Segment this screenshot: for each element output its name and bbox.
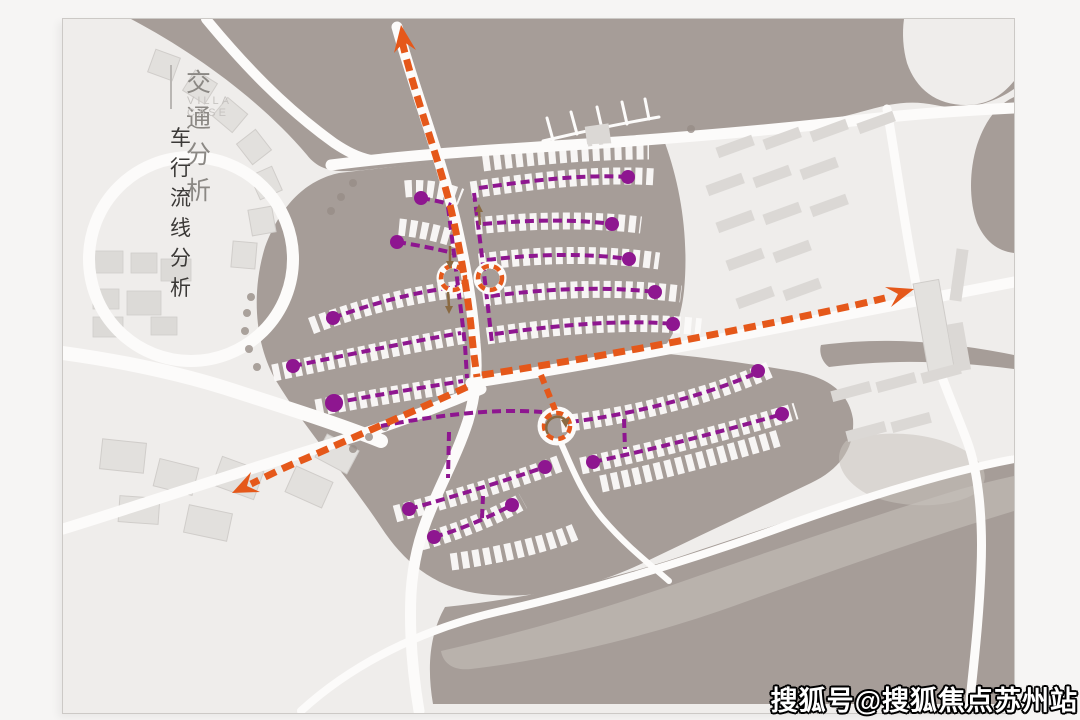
flow-endpoint-dot — [621, 170, 635, 184]
map-board: 交通分析 VILLA CASE 车行流线分析 — [62, 18, 1015, 714]
flow-endpoint-dot — [326, 311, 340, 325]
flow-endpoint-dot — [648, 285, 662, 299]
flow-endpoint-dot — [390, 235, 404, 249]
page: 交通分析 VILLA CASE 车行流线分析 搜狐号@搜狐焦点苏州站 — [0, 0, 1080, 720]
flow-endpoint-dot — [775, 407, 789, 421]
flow-endpoint-dot — [666, 317, 680, 331]
flow-endpoint-dot — [505, 498, 519, 512]
flow-endpoint-dot — [414, 191, 428, 205]
flow-endpoint-dot — [538, 460, 552, 474]
flow-endpoint-dot — [605, 217, 619, 231]
flow-endpoint-dot — [586, 455, 600, 469]
section-label: 车行流线分析 — [170, 122, 193, 302]
flow-endpoint-dot — [286, 359, 300, 373]
flow-endpoint-dot — [402, 502, 416, 516]
flow-endpoint-dot — [751, 364, 765, 378]
flow-endpoint-dot — [622, 252, 636, 266]
watermark: 搜狐号@搜狐焦点苏州站 — [771, 679, 1078, 718]
title-accent-line — [170, 65, 172, 109]
flow-endpoint-dot — [325, 394, 343, 412]
page-subtitle: VILLA CASE — [187, 95, 231, 119]
flow-endpoint-dot — [427, 530, 441, 544]
